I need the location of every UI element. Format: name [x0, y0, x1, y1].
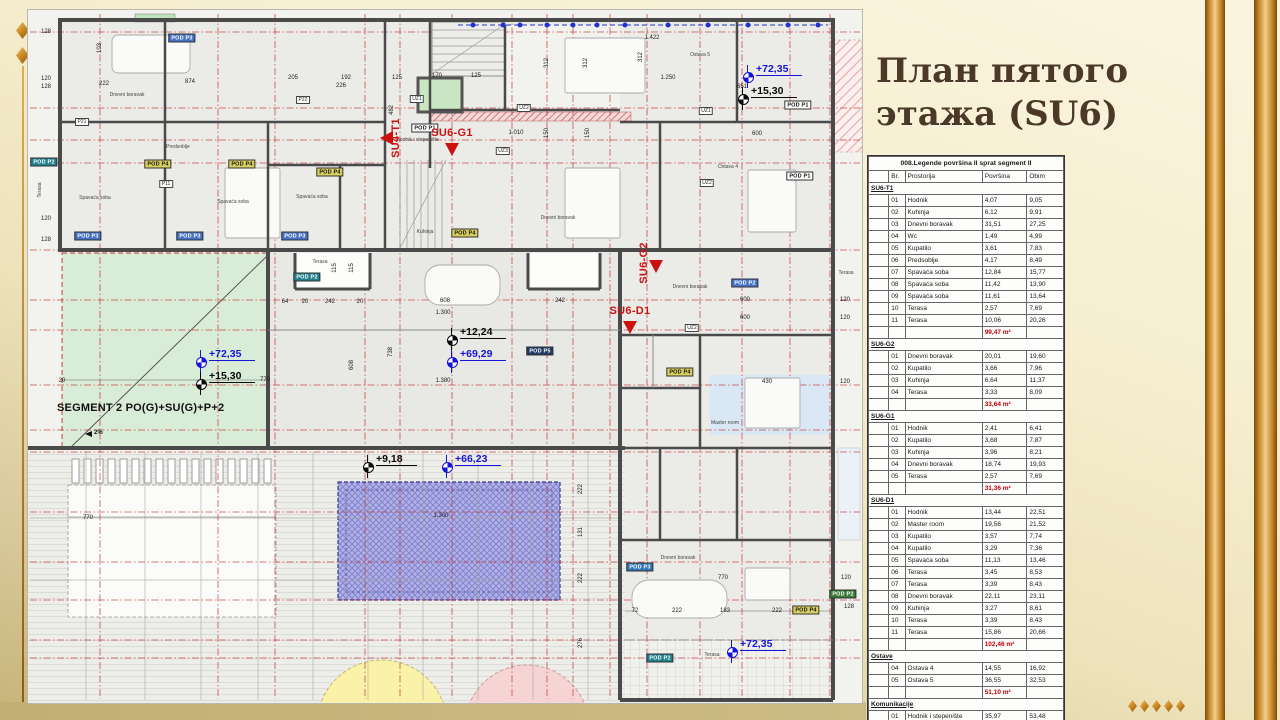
table-cell — [869, 423, 889, 435]
cell-prostorija: Kupatilo — [905, 543, 982, 555]
section-header: SU6-D1 — [869, 495, 1064, 507]
cell-obim: 15,77 — [1027, 267, 1064, 279]
cell-obim: 9,05 — [1027, 195, 1064, 207]
pod-label: POD P5 — [526, 347, 553, 356]
cell-povrsina: 18,74 — [982, 459, 1027, 471]
ref-tag: UZ1 — [410, 95, 424, 103]
dimension-label: 222 — [99, 81, 109, 87]
table-cell — [869, 543, 889, 555]
zone-arrow — [623, 321, 637, 334]
table-cell — [889, 687, 905, 699]
cell-prostorija: Terasa — [905, 471, 982, 483]
cell-povrsina: 19,56 — [982, 519, 1027, 531]
table-cell — [869, 315, 889, 327]
pool-dimension: 1.300 — [433, 513, 448, 519]
table-cell — [869, 663, 889, 675]
cell-povrsina: 2,57 — [982, 471, 1027, 483]
room-label: Terasa — [704, 652, 719, 658]
elevation-value: +72,35 — [756, 63, 802, 76]
cell-prostorija: Kupatilo — [905, 243, 982, 255]
cell-obim: 4,99 — [1027, 231, 1064, 243]
legend-table: 008.Legende površina II sprat segment II… — [867, 155, 1065, 720]
left-gold-line — [22, 66, 24, 720]
cell-povrsina: 11,13 — [982, 555, 1027, 567]
right-gold-bar — [1254, 0, 1277, 720]
cell-prostorija: Master room — [905, 519, 982, 531]
pod-label: POD P1 — [786, 172, 813, 181]
dimension-label: 205 — [288, 75, 298, 81]
cell-br: 02 — [889, 207, 905, 219]
dimension-label: 430 — [762, 379, 772, 385]
cell-br: 01 — [889, 507, 905, 519]
pod-label: POD P4 — [228, 160, 255, 169]
pod-label: POD P4 — [666, 368, 693, 377]
slide-title: План пятого этажа (SU6) — [876, 50, 1196, 135]
table-cell — [869, 435, 889, 447]
cell-povrsina: 2,41 — [982, 423, 1027, 435]
cell-povrsina: 22,11 — [982, 591, 1027, 603]
cell-prostorija: Predsoblje — [905, 255, 982, 267]
cell-prostorija: Dnevni boravak — [905, 459, 982, 471]
ref-tag: P11 — [159, 180, 173, 188]
dimension-label: 1.422 — [644, 35, 659, 41]
pod-label: POD P4 — [144, 160, 171, 169]
cell-obim: 7,36 — [1027, 543, 1064, 555]
table-cell — [889, 399, 905, 411]
cell-br: 01 — [889, 195, 905, 207]
dimension-label: 115 — [349, 263, 355, 273]
cell-prostorija: Terasa — [905, 579, 982, 591]
cell-obim: 20,26 — [1027, 315, 1064, 327]
elevation-value: +69,29 — [460, 348, 506, 361]
room-label: Ostava 4 — [718, 164, 738, 170]
room-label: Kuhinja — [417, 229, 434, 235]
table-cell — [869, 363, 889, 375]
cell-obim: 7,74 — [1027, 531, 1064, 543]
dimension-label: 128 — [41, 29, 51, 35]
dimension-label: 120 — [840, 297, 850, 303]
elevation-value: +15,30 — [751, 85, 797, 98]
cell-br: 10 — [889, 303, 905, 315]
section-header: SU6-G1 — [869, 411, 1064, 423]
pod-label: POD P2 — [829, 590, 856, 599]
pod-label: POD P4 — [792, 606, 819, 615]
cell-prostorija: Wc — [905, 231, 982, 243]
table-cell — [869, 447, 889, 459]
dimension-label: 120 — [841, 575, 851, 581]
table-cell — [889, 327, 905, 339]
elevation-marker-icon — [196, 357, 207, 368]
cell-br: 02 — [889, 363, 905, 375]
cell-obim: 7,87 — [1027, 435, 1064, 447]
cell-prostorija: Spavaća soba — [905, 267, 982, 279]
cell-obim: 8,09 — [1027, 387, 1064, 399]
cell-br: 07 — [889, 267, 905, 279]
cell-obim: 11,37 — [1027, 375, 1064, 387]
cell-povrsina: 3,66 — [982, 363, 1027, 375]
presentation-slide: План пятого этажа (SU6) — [0, 0, 1280, 720]
dimension-label: 120 — [41, 216, 51, 222]
cell-povrsina: 3,57 — [982, 531, 1027, 543]
cell-povrsina: 3,33 — [982, 387, 1027, 399]
cell-prostorija: Spavaća soba — [905, 291, 982, 303]
table-cell — [869, 615, 889, 627]
cell-obim: 13,46 — [1027, 555, 1064, 567]
table-cell — [905, 687, 982, 699]
table-cell — [869, 711, 889, 720]
zone-label: SU6-D1 — [610, 305, 651, 317]
cell-prostorija: Ostava 4 — [905, 663, 982, 675]
bottom-band — [0, 702, 866, 720]
cell-povrsina: 6,64 — [982, 375, 1027, 387]
table-cell — [905, 483, 982, 495]
cell-povrsina: 3,39 — [982, 579, 1027, 591]
table-cell — [1027, 639, 1064, 651]
cell-br: 04 — [889, 459, 905, 471]
right-gold-bar — [1205, 0, 1225, 720]
dimension-label: 482 — [389, 105, 395, 115]
col-header: Br. — [889, 171, 905, 183]
cell-br: 11 — [889, 627, 905, 639]
dimension-label: 128 — [844, 604, 854, 610]
cell-prostorija: Terasa — [905, 627, 982, 639]
pod-label: POD P2 — [30, 158, 57, 167]
table-cell — [869, 471, 889, 483]
table-cell — [869, 687, 889, 699]
cell-br: 06 — [889, 255, 905, 267]
cell-povrsina: 3,61 — [982, 243, 1027, 255]
cell-prostorija: Terasa — [905, 303, 982, 315]
elevation-marker-icon — [196, 379, 207, 390]
cell-obim: 7,69 — [1027, 471, 1064, 483]
dimension-label: 226 — [336, 83, 346, 89]
dimension-label: 770 — [83, 515, 93, 521]
dimension-label: 128 — [41, 84, 51, 90]
table-cell — [905, 327, 982, 339]
cell-obim: 16,92 — [1027, 663, 1064, 675]
room-label: Dnevni boravak — [661, 555, 696, 561]
elevation-value: +66,23 — [455, 453, 501, 466]
elevation-marker-icon — [447, 335, 458, 346]
cell-br: 11 — [889, 315, 905, 327]
pod-label: POD P3 — [281, 232, 308, 241]
plan-labels-layer: 1281201281201281032228742051922261254821… — [28, 10, 862, 703]
cell-br: 05 — [889, 471, 905, 483]
room-label: Dnevni boravak — [673, 284, 708, 290]
cell-br: 05 — [889, 243, 905, 255]
elevation-marker-icon — [743, 72, 754, 83]
pod-label: POD P1 — [784, 101, 811, 110]
dimension-label: 120 — [41, 76, 51, 82]
cell-br: 01 — [889, 351, 905, 363]
cell-obim: 53,48 — [1027, 711, 1064, 720]
table-cell — [869, 267, 889, 279]
cell-br: 05 — [889, 675, 905, 687]
cell-povrsina: 1,49 — [982, 231, 1027, 243]
cell-obim: 21,52 — [1027, 519, 1064, 531]
cell-prostorija: Ostava 5 — [905, 675, 982, 687]
section-total: 102,46 m² — [982, 639, 1027, 651]
dimension-label: 128 — [41, 237, 51, 243]
slide-title-line2: этажа (SU6) — [876, 93, 1196, 136]
cell-obim: 8,43 — [1027, 579, 1064, 591]
elevation-marker-icon — [442, 462, 453, 473]
dimension-label: 242 — [325, 299, 335, 305]
dimension-label: 600 — [740, 297, 750, 303]
dimension-label: 222 — [578, 573, 584, 583]
cell-prostorija: Kupatilo — [905, 435, 982, 447]
cell-prostorija: Terasa — [905, 567, 982, 579]
cell-obim: 7,96 — [1027, 363, 1064, 375]
cell-obim: 8,43 — [1027, 615, 1064, 627]
table-cell — [869, 531, 889, 543]
diamond-ornament — [1140, 700, 1149, 712]
elevation-marker-icon — [738, 94, 749, 105]
diamond-ornament — [1128, 700, 1137, 712]
cell-prostorija: Hodnik — [905, 423, 982, 435]
diamond-ornament — [1176, 700, 1185, 712]
dimension-label: 20 — [302, 299, 309, 305]
table-cell — [869, 519, 889, 531]
dimension-label: 125 — [392, 75, 402, 81]
cell-prostorija: Kupatilo — [905, 363, 982, 375]
cell-povrsina: 3,27 — [982, 603, 1027, 615]
cell-prostorija: Terasa — [905, 315, 982, 327]
cell-br: 04 — [889, 663, 905, 675]
dimension-label: 1.250 — [660, 75, 675, 81]
table-cell — [869, 375, 889, 387]
cell-obim: 7,69 — [1027, 303, 1064, 315]
ref-tag: UZ3 — [496, 147, 510, 155]
dimension-label: 64 — [282, 299, 289, 305]
dimension-label: 600 — [752, 131, 762, 137]
elevation-value: +9,18 — [376, 453, 417, 466]
cell-povrsina: 2,57 — [982, 303, 1027, 315]
cell-prostorija: Dnevni boravak — [905, 219, 982, 231]
table-cell — [869, 171, 889, 183]
table-cell — [869, 639, 889, 651]
pod-label: POD P4 — [451, 229, 478, 238]
section-header: Komunikacije — [869, 699, 1064, 711]
floor-plan: 1281201281201281032228742051922261254821… — [28, 10, 862, 703]
dimension-label: 183 — [720, 608, 730, 614]
table-cell — [869, 591, 889, 603]
cell-br: 09 — [889, 603, 905, 615]
cell-br: 08 — [889, 279, 905, 291]
table-cell — [869, 627, 889, 639]
dimension-label: 170 — [432, 73, 442, 79]
elevation-value: +72,35 — [740, 638, 786, 651]
table-cell — [889, 483, 905, 495]
ref-tag: UZ2 — [700, 179, 714, 187]
cell-br: 01 — [889, 423, 905, 435]
cell-prostorija: Kupatilo — [905, 531, 982, 543]
cell-br: 03 — [889, 219, 905, 231]
cell-prostorija: Kuhinja — [905, 207, 982, 219]
section-header: SU6-G2 — [869, 339, 1064, 351]
table-cell — [869, 219, 889, 231]
cell-obim: 6,41 — [1027, 423, 1064, 435]
table-cell — [869, 507, 889, 519]
dimension-label: 20 — [357, 299, 364, 305]
dimension-label: 192 — [341, 75, 351, 81]
cell-povrsina: 3,68 — [982, 435, 1027, 447]
cell-prostorija: Kuhinja — [905, 447, 982, 459]
dimension-label: 120 — [840, 315, 850, 321]
dimension-label: 222 — [578, 484, 584, 494]
cell-povrsina: 3,29 — [982, 543, 1027, 555]
pod-label: POD P3 — [176, 232, 203, 241]
diamond-ornament — [1164, 700, 1173, 712]
table-cell — [869, 387, 889, 399]
table-cell — [869, 255, 889, 267]
table-cell — [905, 399, 982, 411]
dimension-label: 242 — [555, 298, 565, 304]
dimension-label: 770 — [260, 377, 270, 383]
cell-obim: 8,61 — [1027, 603, 1064, 615]
area-table: 008.Legende površina II sprat segment II… — [868, 156, 1064, 720]
segment-label: SEGMENT 2 PO(G)+SU(G)+P+2 — [57, 402, 224, 414]
cell-br: 03 — [889, 531, 905, 543]
pod-label: POD P4 — [316, 168, 343, 177]
dimension-label: 1.010 — [508, 130, 523, 136]
elevation-value: +15,30 — [209, 370, 255, 383]
cell-povrsina: 12,84 — [982, 267, 1027, 279]
cell-povrsina: 3,45 — [982, 567, 1027, 579]
section-header: Ostave — [869, 651, 1064, 663]
dimension-label: 312 — [544, 58, 550, 68]
cell-povrsina: 4,17 — [982, 255, 1027, 267]
dimension-label: 103 — [97, 43, 103, 53]
dimension-label: 600 — [740, 315, 750, 321]
cell-br: 02 — [889, 519, 905, 531]
table-cell — [869, 327, 889, 339]
cell-br: 04 — [889, 543, 905, 555]
cell-prostorija: Terasa — [905, 615, 982, 627]
dimension-label: 608 — [349, 360, 355, 370]
dimension-label: 72 — [632, 608, 639, 614]
slide-title-line1: План пятого — [876, 50, 1196, 93]
section-total: 99,47 m² — [982, 327, 1027, 339]
table-cell — [869, 579, 889, 591]
dimension-label: 738 — [388, 347, 394, 357]
cell-obim: 20,66 — [1027, 627, 1064, 639]
slope-label: 2% — [94, 430, 103, 436]
table-title: 008.Legende površina II sprat segment II — [869, 157, 1064, 171]
diamond-ornament — [1152, 700, 1161, 712]
cell-br: 09 — [889, 291, 905, 303]
cell-br: 08 — [889, 591, 905, 603]
ref-tag: P21 — [75, 118, 89, 126]
section-header: SU6-T1 — [869, 183, 1064, 195]
cell-povrsina: 15,86 — [982, 627, 1027, 639]
cell-obim: 27,25 — [1027, 219, 1064, 231]
pod-label: POD P2 — [646, 654, 673, 663]
elevation-marker-icon — [447, 357, 458, 368]
cell-povrsina: 3,96 — [982, 447, 1027, 459]
col-header: Prostorija — [905, 171, 982, 183]
table-cell — [869, 351, 889, 363]
cell-br: 01 — [889, 711, 905, 720]
cell-obim: 19,60 — [1027, 351, 1064, 363]
room-label: Predsoblje — [166, 144, 190, 150]
cell-povrsina: 10,06 — [982, 315, 1027, 327]
room-label: Terasa — [838, 270, 853, 276]
section-total: 51,10 m² — [982, 687, 1027, 699]
cell-br: 10 — [889, 615, 905, 627]
cell-povrsina: 31,51 — [982, 219, 1027, 231]
col-header: Obim — [1027, 171, 1064, 183]
cell-obim: 8,49 — [1027, 255, 1064, 267]
table-cell — [869, 243, 889, 255]
dimension-label: 115 — [332, 263, 338, 273]
cell-obim: 19,93 — [1027, 459, 1064, 471]
cell-povrsina: 6,12 — [982, 207, 1027, 219]
cell-povrsina: 36,55 — [982, 675, 1027, 687]
cell-obim: 22,51 — [1027, 507, 1064, 519]
elevation-marker-icon — [363, 462, 374, 473]
cell-obim: 8,21 — [1027, 447, 1064, 459]
dimension-label: 120 — [840, 379, 850, 385]
cell-prostorija: Spavaća soba — [905, 279, 982, 291]
cell-prostorija: Dnevni boravak — [905, 591, 982, 603]
pod-label: POD P2 — [731, 279, 758, 288]
dimension-label: 1.300 — [435, 310, 450, 316]
dimension-label: 150 — [585, 128, 591, 138]
room-label: Spavaća soba — [217, 199, 249, 205]
col-header: Površina — [982, 171, 1027, 183]
cell-obim: 13,90 — [1027, 279, 1064, 291]
zone-arrow — [380, 131, 393, 145]
cell-obim: 9,91 — [1027, 207, 1064, 219]
table-cell — [1027, 483, 1064, 495]
room-label: Dnevni boravak — [110, 92, 145, 98]
table-cell — [889, 639, 905, 651]
zone-arrow — [445, 143, 459, 156]
dimension-label: 20 — [59, 378, 66, 384]
table-cell — [869, 603, 889, 615]
table-cell — [869, 399, 889, 411]
cell-povrsina: 13,44 — [982, 507, 1027, 519]
cell-br: 02 — [889, 435, 905, 447]
section-total: 31,36 m² — [982, 483, 1027, 495]
table-cell — [869, 459, 889, 471]
pod-label: POD P3 — [168, 34, 195, 43]
ref-tag: P22 — [296, 96, 310, 104]
dimension-label: 312 — [583, 58, 589, 68]
table-cell — [869, 483, 889, 495]
table-cell — [869, 555, 889, 567]
table-cell — [869, 291, 889, 303]
dimension-label: 770 — [718, 575, 728, 581]
room-label: Master room — [711, 420, 739, 426]
dimension-label: 276 — [578, 638, 584, 648]
table-cell — [1027, 327, 1064, 339]
table-cell — [869, 303, 889, 315]
table-cell — [1027, 687, 1064, 699]
cell-prostorija: Terasa — [905, 387, 982, 399]
cell-br: 07 — [889, 579, 905, 591]
table-cell — [869, 231, 889, 243]
cell-obim: 13,64 — [1027, 291, 1064, 303]
table-cell — [869, 675, 889, 687]
cell-obim: 23,11 — [1027, 591, 1064, 603]
table-cell — [869, 567, 889, 579]
section-total: 33,64 m² — [982, 399, 1027, 411]
room-label: Spavaća soba — [296, 194, 328, 200]
cell-povrsina: 3,39 — [982, 615, 1027, 627]
elevation-value: +72,35 — [209, 348, 255, 361]
